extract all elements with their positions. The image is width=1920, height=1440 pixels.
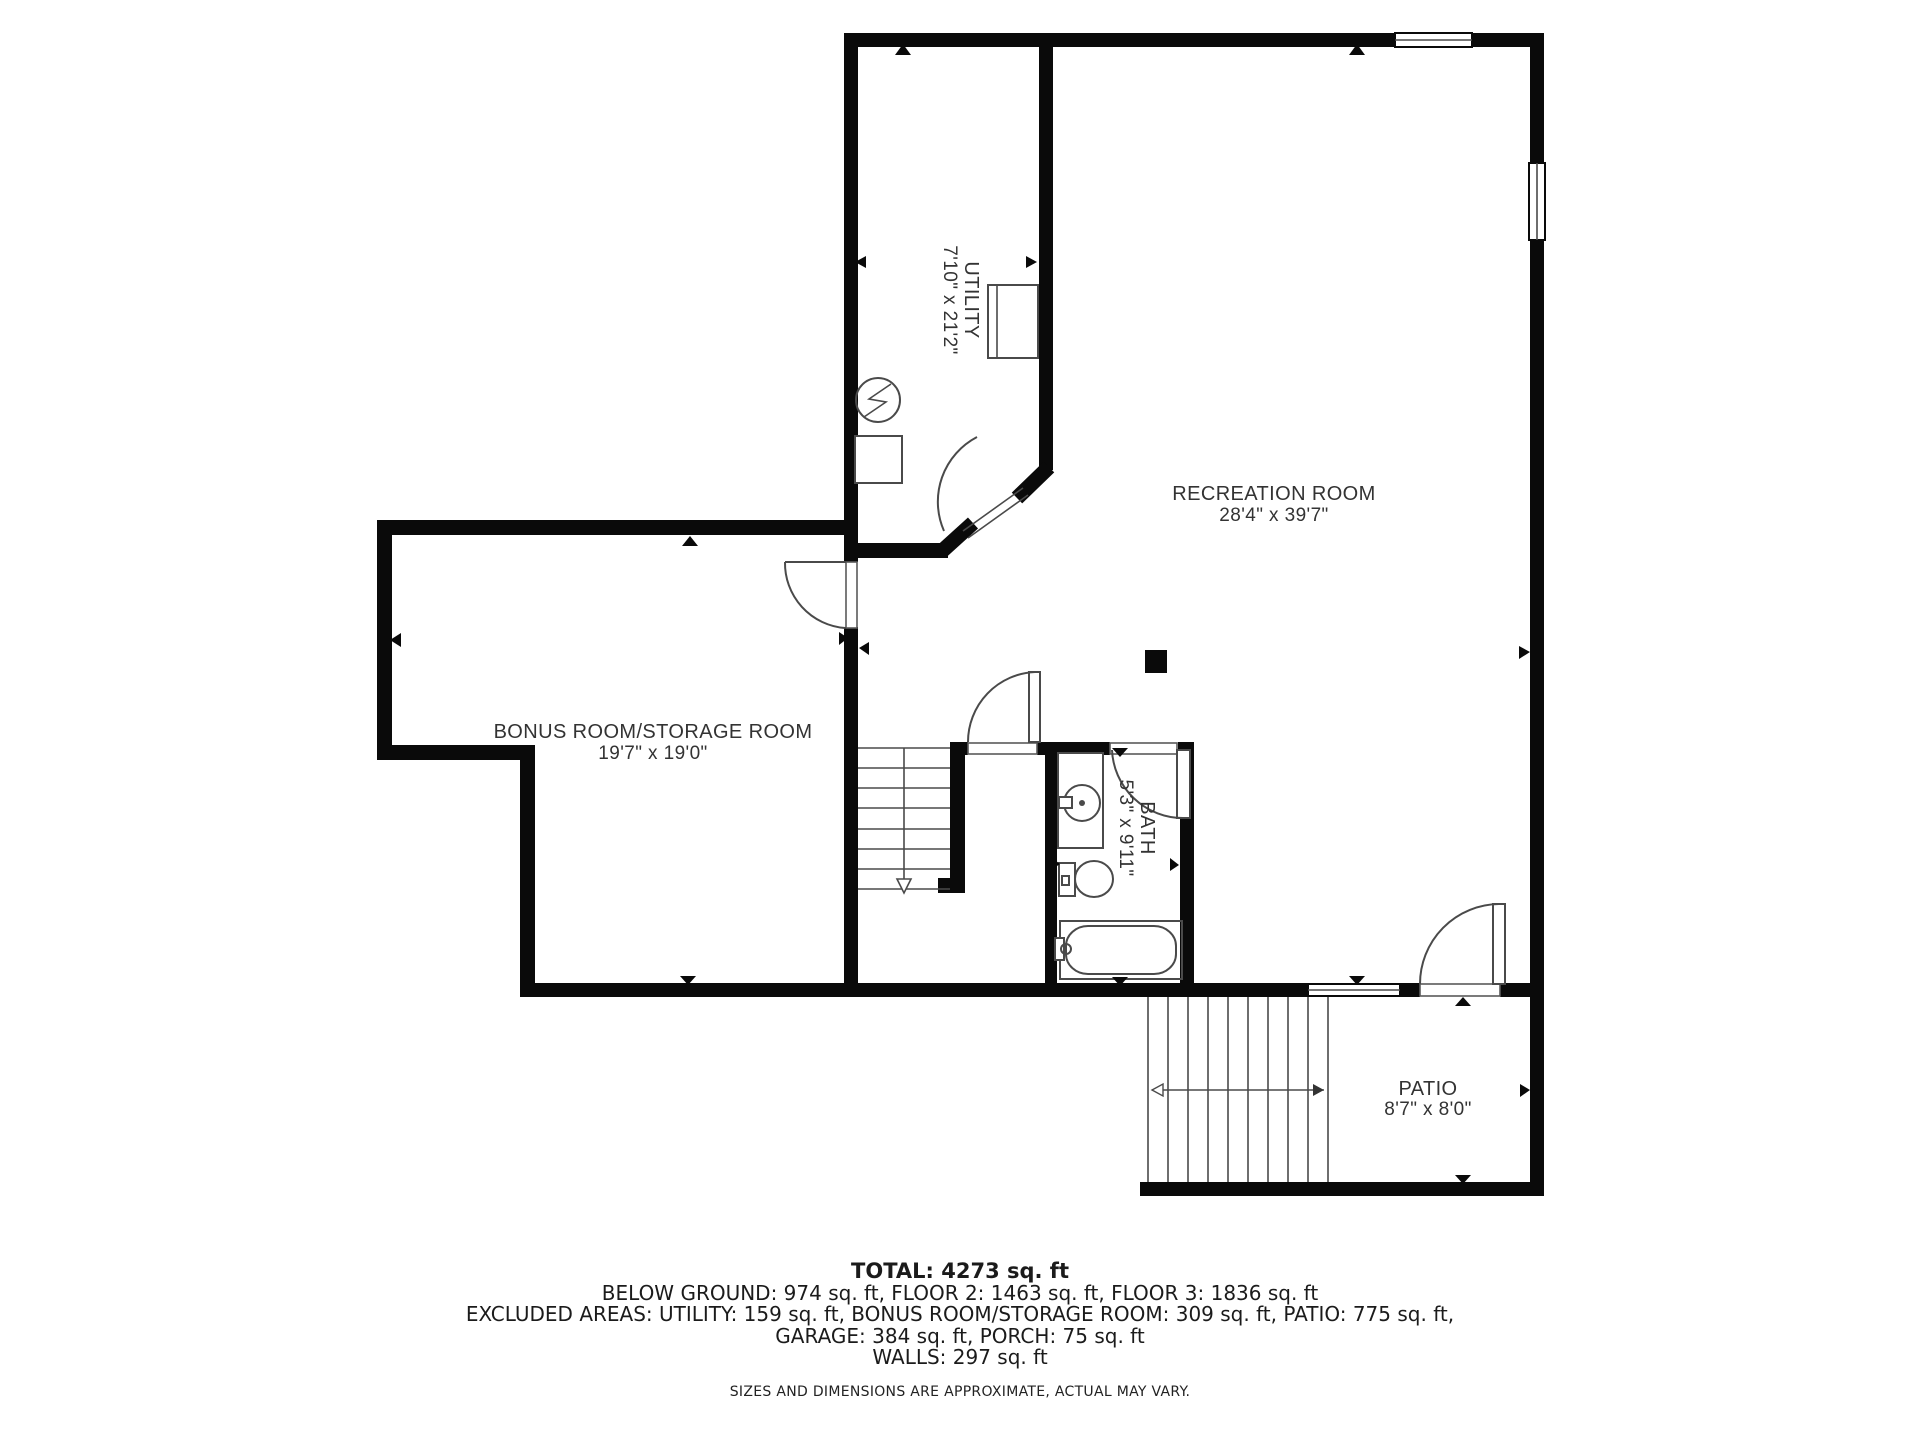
wall-bonus-left-lower	[520, 745, 535, 997]
wall-bonus-left-upper	[377, 520, 392, 760]
dimension-tick-marks	[390, 44, 1530, 1184]
wall-bottom-main	[520, 983, 1308, 997]
support-post	[1145, 650, 1167, 673]
summary-excluded-1: EXCLUDED AREAS: UTILITY: 159 sq. ft, BON…	[0, 1304, 1920, 1326]
doors	[785, 437, 1505, 996]
room-label-bath-group: BATH 5'3" x 9'11"	[1115, 779, 1158, 876]
window-bottom	[1308, 984, 1400, 996]
floor-plan-drawing: RECREATION ROOM 28'4" x 39'7" BONUS ROOM…	[0, 0, 1920, 1440]
wall-stair-closet-left	[950, 742, 965, 893]
summary-excluded-2: GARAGE: 384 sq. ft, PORCH: 75 sq. ft	[0, 1326, 1920, 1348]
window-top	[1395, 33, 1472, 47]
room-dims-utility: 7'10" x 21'2"	[939, 245, 960, 354]
room-label-patio: PATIO	[1398, 1078, 1457, 1100]
summary-by-floor: BELOW GROUND: 974 sq. ft, FLOOR 2: 1463 …	[0, 1283, 1920, 1305]
bathtub	[1055, 921, 1182, 979]
room-dims-patio: 8'7" x 8'0"	[1384, 1099, 1471, 1120]
door-closet	[968, 672, 1040, 754]
stairs-exterior-patio	[1148, 997, 1328, 1182]
sink-vanity	[1058, 753, 1103, 848]
wall-bottom-mid	[1400, 983, 1420, 997]
wall-bonus-top	[377, 520, 858, 535]
washer-dryer	[988, 285, 1038, 358]
window-right	[1529, 163, 1545, 240]
walls	[377, 33, 1544, 1196]
wall-utility-south	[844, 543, 948, 558]
wall-bonus-right	[844, 627, 858, 997]
summary-walls: WALLS: 297 sq. ft	[0, 1347, 1920, 1369]
toilet	[1059, 861, 1113, 897]
wall-stair-stub	[938, 878, 965, 893]
room-dims-recreation: 28'4" x 39'7"	[1219, 505, 1328, 526]
room-label-utility: UTILITY	[960, 261, 982, 338]
water-heater-icon	[856, 378, 900, 422]
stairs-interior	[858, 748, 950, 893]
door-utility	[938, 437, 1028, 538]
room-label-bath: BATH	[1136, 801, 1158, 854]
wall-utility-right	[1039, 33, 1053, 470]
room-label-bonus: BONUS ROOM/STORAGE ROOM	[494, 721, 813, 743]
wall-bonus-step	[377, 745, 535, 760]
utility-cabinet	[855, 436, 902, 483]
dimension-arrow	[1152, 1084, 1324, 1096]
summary-total: TOTAL: 4273 sq. ft	[0, 1261, 1920, 1283]
wall-right-upper	[1530, 33, 1544, 163]
summary-disclaimer: SIZES AND DIMENSIONS ARE APPROXIMATE, AC…	[0, 1382, 1920, 1404]
floor-plan: RECREATION ROOM 28'4" x 39'7" BONUS ROOM…	[0, 0, 1920, 1440]
wall-closet-top-left	[950, 742, 968, 755]
wall-angled-upper	[1017, 467, 1049, 498]
stairs-down-arrow	[897, 879, 911, 893]
windows	[1308, 33, 1545, 996]
wall-bottom-right	[1500, 983, 1544, 997]
wall-patio-bottom	[1140, 1182, 1544, 1196]
door-bonus-room	[785, 562, 857, 628]
door-patio	[1420, 904, 1505, 996]
room-label-utility-group: UTILITY 7'10" x 21'2"	[939, 245, 982, 354]
room-label-recreation: RECREATION ROOM	[1172, 483, 1375, 505]
area-summary: TOTAL: 4273 sq. ft BELOW GROUND: 974 sq.…	[0, 1261, 1920, 1404]
room-dims-bath: 5'3" x 9'11"	[1115, 779, 1136, 876]
room-dims-bonus: 19'7" x 19'0"	[598, 743, 707, 764]
wall-right-lower	[1530, 240, 1544, 1196]
